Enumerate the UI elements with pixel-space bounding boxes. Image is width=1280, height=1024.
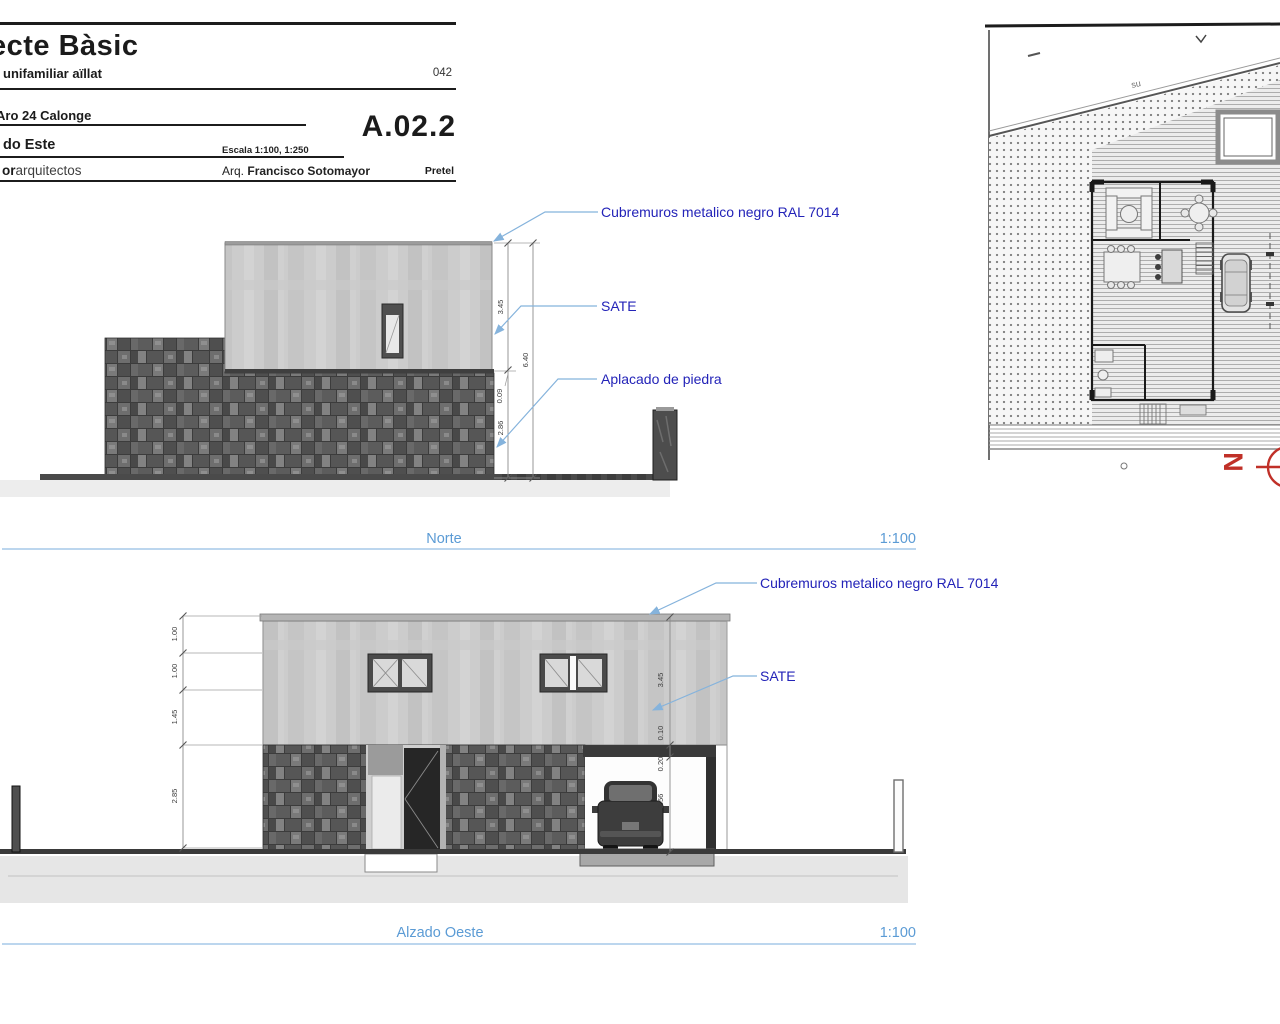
- stone-pillar: [653, 407, 677, 480]
- project-location: Aro 24 Calonge: [0, 108, 91, 123]
- entry-step: [365, 854, 437, 872]
- rule: [0, 156, 344, 158]
- view-name: do Este: [3, 137, 55, 153]
- annotation-cubremuros: Cubremuros metalico negro RAL 7014: [760, 575, 999, 591]
- window: [382, 304, 403, 358]
- sheet-small-number: 042: [433, 67, 452, 79]
- ground-line: [40, 474, 670, 480]
- north-elevation: 3.45 0.09 2.86 6.40 Cubremuros metalico …: [0, 204, 916, 549]
- dim-label: 6.40: [521, 353, 530, 368]
- kitchen-island: [1155, 250, 1182, 283]
- dining-table: [1104, 246, 1140, 289]
- dim-label: 2.86: [496, 421, 505, 436]
- dimension-chain-left: [180, 613, 263, 852]
- dim-label: 0.09: [495, 389, 504, 404]
- dim-label: 1.00: [170, 627, 179, 642]
- firm-name-light: arquitectos: [16, 163, 82, 178]
- rule: [0, 88, 456, 90]
- view-scale: 1:100: [880, 531, 916, 547]
- road-band: [989, 425, 1280, 449]
- ground-line: [0, 849, 906, 854]
- metal-coping: [260, 614, 730, 621]
- rule: [0, 22, 456, 25]
- annotation-sate: SATE: [760, 668, 796, 684]
- drawing-code: A.02.2: [362, 110, 456, 144]
- north-arrow-letter: N: [1218, 452, 1248, 472]
- dim-label: 3.45: [656, 673, 665, 688]
- annotation-sate: SATE: [601, 298, 637, 314]
- site-plan: su: [985, 24, 1280, 487]
- sate-volume: [225, 243, 492, 371]
- firm-name-bold: or: [2, 163, 16, 178]
- page-border: [985, 24, 1280, 26]
- dim-label: 0.20: [656, 757, 665, 772]
- dimension-chain: [494, 240, 540, 482]
- drawing-sheet: 3.45 0.09 2.86 6.40 Cubremuros metalico …: [0, 0, 1280, 1024]
- annotation-cubremuros: Cubremuros metalico negro RAL 7014: [601, 204, 840, 220]
- sidelight: [372, 776, 401, 849]
- boundary-wall-right: [894, 780, 903, 852]
- leader-lines: [494, 212, 598, 447]
- ground-strip: [0, 856, 908, 903]
- boundary-wall-left: [12, 786, 20, 852]
- project-title: ecte Bàsic: [0, 30, 139, 63]
- dim-label: 1.45: [170, 710, 179, 725]
- car-top: [1220, 254, 1252, 312]
- project-subtitle: unifamiliar aïllat: [3, 66, 102, 81]
- metal-coping: [225, 242, 492, 246]
- title-block: ecte Bàsic unifamiliar aïllat 042 Aro 24…: [0, 0, 456, 186]
- floor-band: [225, 369, 494, 374]
- annotation-aplacado: Aplacado de piedra: [601, 371, 722, 387]
- dim-label: 2.85: [170, 789, 179, 804]
- sofa-set: [1106, 188, 1152, 238]
- scale-note: Escala 1:100, 1:250: [222, 145, 309, 156]
- firm-name: orarquitectos: [2, 162, 82, 180]
- view-scale: 1:100: [880, 925, 916, 941]
- client-name: Pretel: [425, 165, 454, 177]
- architect-name: Arq. Francisco Sotomayor: [222, 164, 370, 178]
- dim-label: 0.10: [656, 726, 665, 741]
- ground-strip: [0, 480, 670, 497]
- view-caption: Alzado Oeste: [396, 925, 483, 941]
- dim-label: 2.56: [656, 794, 665, 809]
- front-door: [404, 748, 440, 851]
- pool: [1218, 112, 1278, 162]
- dim-label: 3.45: [496, 300, 505, 315]
- rule: [0, 124, 306, 126]
- slope-label: su: [1130, 78, 1142, 90]
- window-left: [368, 654, 432, 692]
- terrain-hatch: [989, 112, 1092, 425]
- window-right: [540, 654, 607, 692]
- west-elevation: 1.00 1.00 1.45 2.85 3.45 0.10 0.20 2.56 …: [0, 575, 999, 944]
- entry: [366, 745, 446, 851]
- rule: [0, 180, 456, 182]
- compass-icon: [1256, 447, 1280, 487]
- column: [706, 757, 716, 852]
- view-caption: Norte: [426, 531, 461, 547]
- dim-label: 1.00: [170, 664, 179, 679]
- beam: [583, 745, 716, 757]
